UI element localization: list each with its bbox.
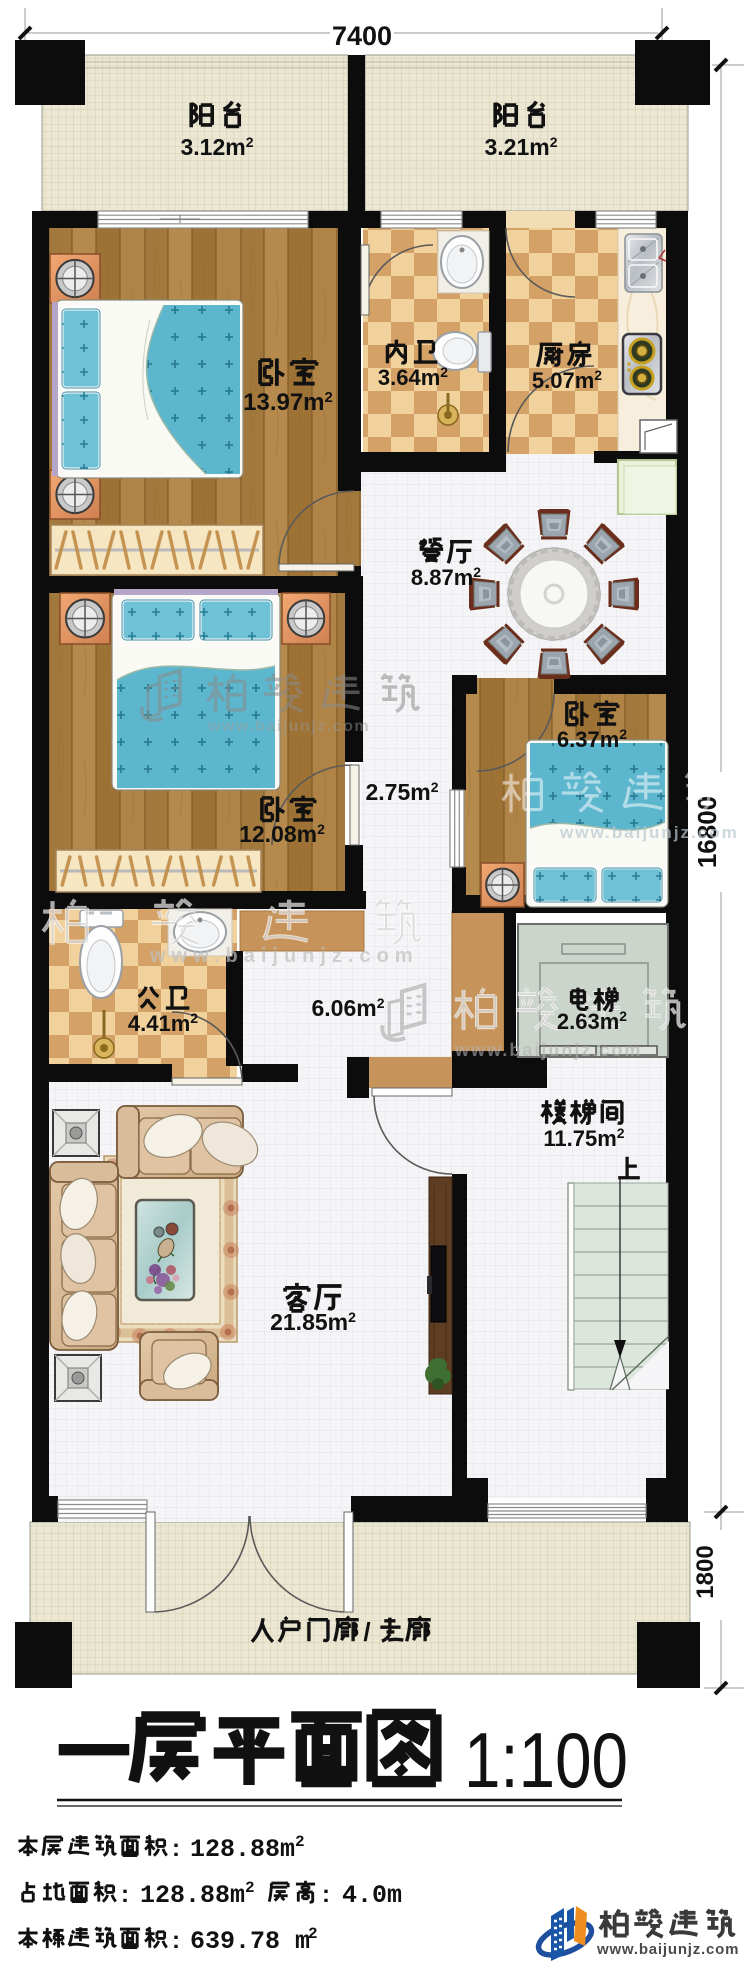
svg-text:13.97m2: 13.97m2 xyxy=(243,389,333,416)
svg-text:3.21m2: 3.21m2 xyxy=(484,134,557,160)
svg-text::: : xyxy=(172,1835,180,1862)
svg-text:2.63m2: 2.63m2 xyxy=(557,1008,627,1034)
svg-text:1800: 1800 xyxy=(692,1545,719,1598)
svg-text:12.08m2: 12.08m2 xyxy=(239,821,325,847)
svg-text:2: 2 xyxy=(295,1833,305,1851)
svg-text:6.06m2: 6.06m2 xyxy=(311,995,384,1021)
svg-text:4.0m: 4.0m xyxy=(342,1881,402,1910)
svg-text:1:100: 1:100 xyxy=(464,1718,628,1805)
svg-text:8.87m2: 8.87m2 xyxy=(411,564,481,590)
svg-text:2: 2 xyxy=(308,1925,318,1943)
svg-text:5.07m2: 5.07m2 xyxy=(532,367,602,393)
svg-text:128.88m: 128.88m xyxy=(140,1881,245,1910)
svg-text:639.78 m: 639.78 m xyxy=(190,1927,310,1956)
svg-text:/: / xyxy=(363,1617,370,1647)
svg-text:3.12m2: 3.12m2 xyxy=(180,134,253,160)
svg-text:www.baijunjz.com: www.baijunjz.com xyxy=(454,1040,642,1060)
svg-text:www.baijunjz.com: www.baijunjz.com xyxy=(559,823,739,842)
svg-text:www.baijunjz.com: www.baijunjz.com xyxy=(596,1941,739,1958)
svg-text:21.85m2: 21.85m2 xyxy=(270,1309,356,1335)
svg-text:4.41m2: 4.41m2 xyxy=(128,1010,198,1036)
svg-text::: : xyxy=(121,1881,129,1908)
svg-text:2.75m2: 2.75m2 xyxy=(365,779,438,805)
svg-text::: : xyxy=(322,1881,330,1908)
svg-text:2: 2 xyxy=(245,1879,255,1897)
svg-text:www.baijunjz.com: www.baijunjz.com xyxy=(149,945,419,967)
svg-text:www.baijunjz.com: www.baijunjz.com xyxy=(207,718,370,735)
svg-text:6.37m2: 6.37m2 xyxy=(557,726,627,752)
svg-text:3.64m2: 3.64m2 xyxy=(378,364,448,390)
svg-text:7400: 7400 xyxy=(332,21,392,51)
svg-text::: : xyxy=(172,1927,180,1954)
svg-text:11.75m2: 11.75m2 xyxy=(543,1125,624,1151)
svg-text:128.88m: 128.88m xyxy=(190,1835,295,1864)
